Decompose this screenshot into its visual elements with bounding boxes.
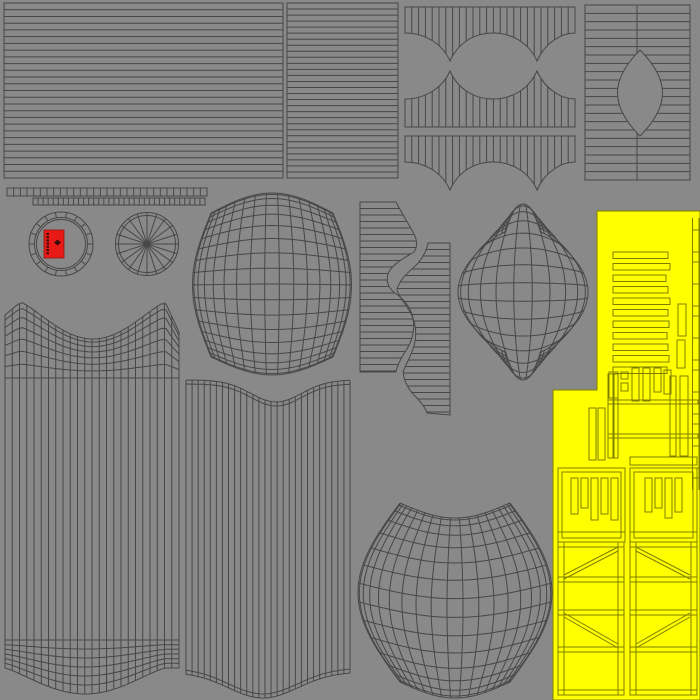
spoke-wheel-island <box>116 213 179 276</box>
red-label-dot <box>47 233 50 235</box>
red-label-dot <box>47 236 50 238</box>
red-label-dot <box>47 246 50 248</box>
red-label-dot <box>47 239 50 241</box>
uv-texture-atlas <box>0 0 700 700</box>
red-label-patch <box>44 230 64 258</box>
red-label-dot <box>47 252 50 254</box>
uv-layout-canvas <box>0 0 700 700</box>
red-label-dot <box>47 249 50 251</box>
red-label-dot <box>47 243 50 245</box>
